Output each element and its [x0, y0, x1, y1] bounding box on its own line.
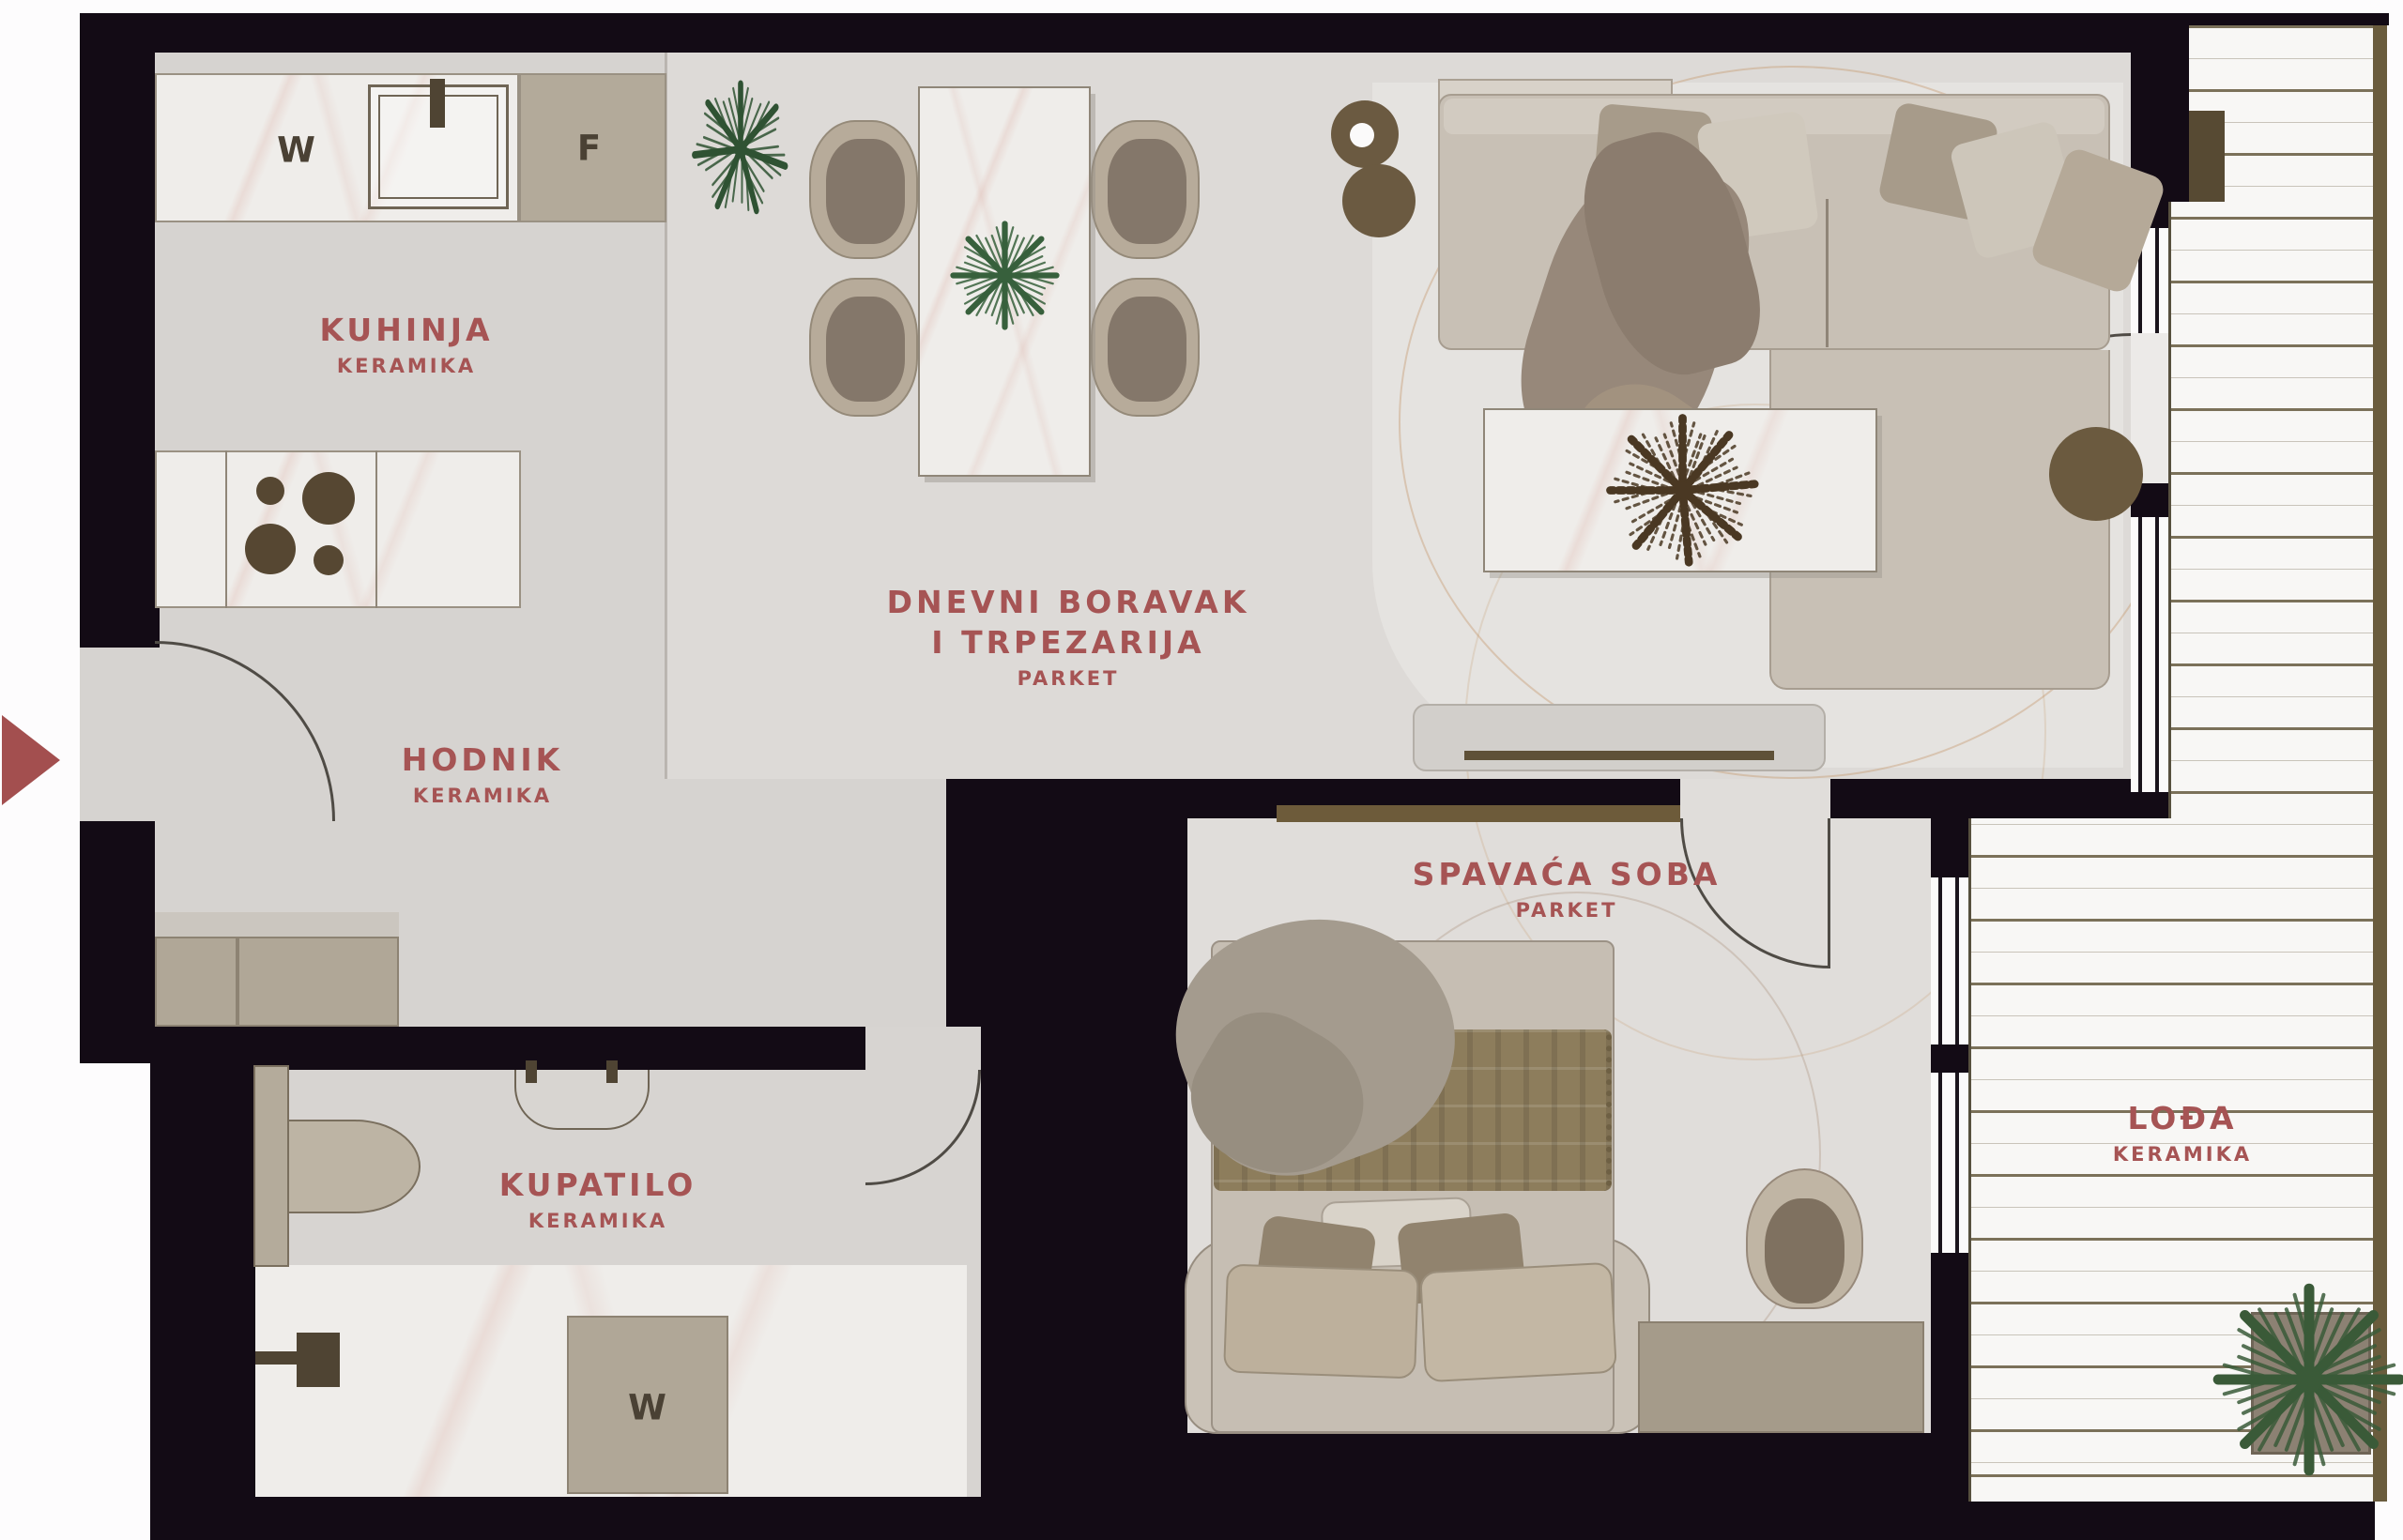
room-label-lodja: LOĐA KERAMIKA [2113, 1100, 2252, 1166]
room-name: SPAVAĆA SOBA [1413, 856, 1722, 892]
faucet-icon [606, 1060, 618, 1083]
dining-chair-seat [1108, 297, 1186, 402]
entrance-arrow [2, 715, 60, 805]
bathroom-washer-label: W [628, 1388, 667, 1428]
counter-divider [375, 450, 377, 608]
room-label-kupatilo: KUPATILO KERAMIKA [499, 1166, 697, 1232]
dining-chair-seat [1108, 139, 1186, 244]
faucet-icon [526, 1060, 537, 1083]
wall-left-mid [80, 821, 155, 1063]
window-mullion [2131, 792, 2168, 818]
wall-bedroom-bottom [1157, 1433, 1931, 1540]
wardrobe-icon [1277, 805, 1680, 822]
wall-loggia-top-thin [2189, 13, 2389, 25]
counter-divider [225, 450, 227, 608]
kitchen-washer-label: W [277, 130, 316, 171]
hall-closet-cell [155, 937, 237, 1027]
room-label-hodnik: HODNIK KERAMIKA [402, 741, 564, 807]
loggia-plant-icon [2206, 1276, 2403, 1483]
hall-closet-cell [237, 937, 399, 1027]
dining-chair [1091, 120, 1200, 259]
armchair-seat [1765, 1198, 1844, 1304]
toilet-cistern [253, 1065, 289, 1267]
floor-hall-lower [666, 779, 946, 1027]
dining-chair-seat [826, 139, 905, 244]
loggia-divider-block [2189, 111, 2225, 202]
room-name: KUPATILO [499, 1166, 697, 1203]
shower-head-icon [297, 1333, 340, 1387]
dining-chair [809, 120, 918, 259]
kitchen-fridge-label: F [577, 129, 602, 169]
tv-icon [1464, 751, 1774, 760]
kitchen-plant-icon [688, 75, 793, 223]
sofa-seat-seam [1826, 199, 1829, 347]
cooktop-burner [302, 472, 355, 525]
bathroom-door-gap [865, 1027, 981, 1070]
dining-chair [1091, 278, 1200, 417]
floor-entrance-gap [80, 641, 155, 821]
room-name: LOĐA [2113, 1100, 2252, 1136]
dining-chair [809, 278, 918, 417]
wall-top [80, 13, 2131, 53]
room-material: KERAMIKA [2113, 1143, 2252, 1166]
window-bedroom-loggia [1931, 877, 1968, 1253]
bedroom-dresser [1638, 1321, 1924, 1433]
wall-bath-bedroom-band [981, 818, 1187, 1540]
bedroom-door-gap [1680, 779, 1830, 818]
floor-lamp-icon [1331, 100, 1406, 251]
bed-pillow [1223, 1263, 1419, 1379]
bedroom-armchair [1746, 1168, 1863, 1309]
shower-arm-icon [255, 1351, 298, 1365]
dining-chair-seat [826, 297, 905, 402]
dried-plant-icon [1600, 408, 1765, 572]
room-material: KERAMIKA [499, 1210, 697, 1232]
wall-bathroom-top [155, 1027, 865, 1070]
window-mullion [1931, 1044, 1968, 1073]
window-living-loggia [2131, 202, 2168, 818]
wall-loggia-bottom-bar [1931, 1502, 2375, 1540]
room-name: DNEVNI BORAVAK [887, 584, 1250, 620]
kitchen-faucet-icon [430, 79, 445, 128]
room-label-spavaca-soba: SPAVAĆA SOBA PARKET [1413, 856, 1722, 922]
side-table-icon [2049, 427, 2143, 521]
floor-plan: W F [0, 0, 2403, 1540]
entrance-door-leaf [80, 608, 160, 648]
room-name-line2: I TRPEZARIJA [887, 624, 1250, 661]
room-material: KERAMIKA [402, 785, 564, 807]
room-material: KERAMIKA [319, 355, 493, 377]
room-label-kuhinja: KUHINJA KERAMIKA [319, 312, 493, 377]
toilet-bowl [289, 1120, 421, 1213]
hall-closet-shelf [155, 912, 399, 937]
room-material: PARKET [1413, 899, 1722, 922]
cooktop-burner [314, 545, 344, 575]
wall-bottom-bathroom [150, 1497, 981, 1540]
wall-bedroom-top-right [1830, 779, 2168, 818]
tv-stand [1413, 704, 1826, 771]
bed-pillow [1419, 1262, 1617, 1383]
room-name: KUHINJA [319, 312, 493, 348]
wall-left-upper [80, 13, 155, 641]
room-name: HODNIK [402, 741, 564, 778]
cooktop-burner [245, 524, 296, 574]
cooktop-burner [256, 477, 284, 505]
room-label-dnevni-boravak: DNEVNI BORAVAK I TRPEZARIJA PARKET [887, 584, 1250, 690]
wall-left-lower [150, 1063, 255, 1540]
room-material: PARKET [887, 667, 1250, 690]
dining-table-plant-icon [946, 217, 1064, 334]
